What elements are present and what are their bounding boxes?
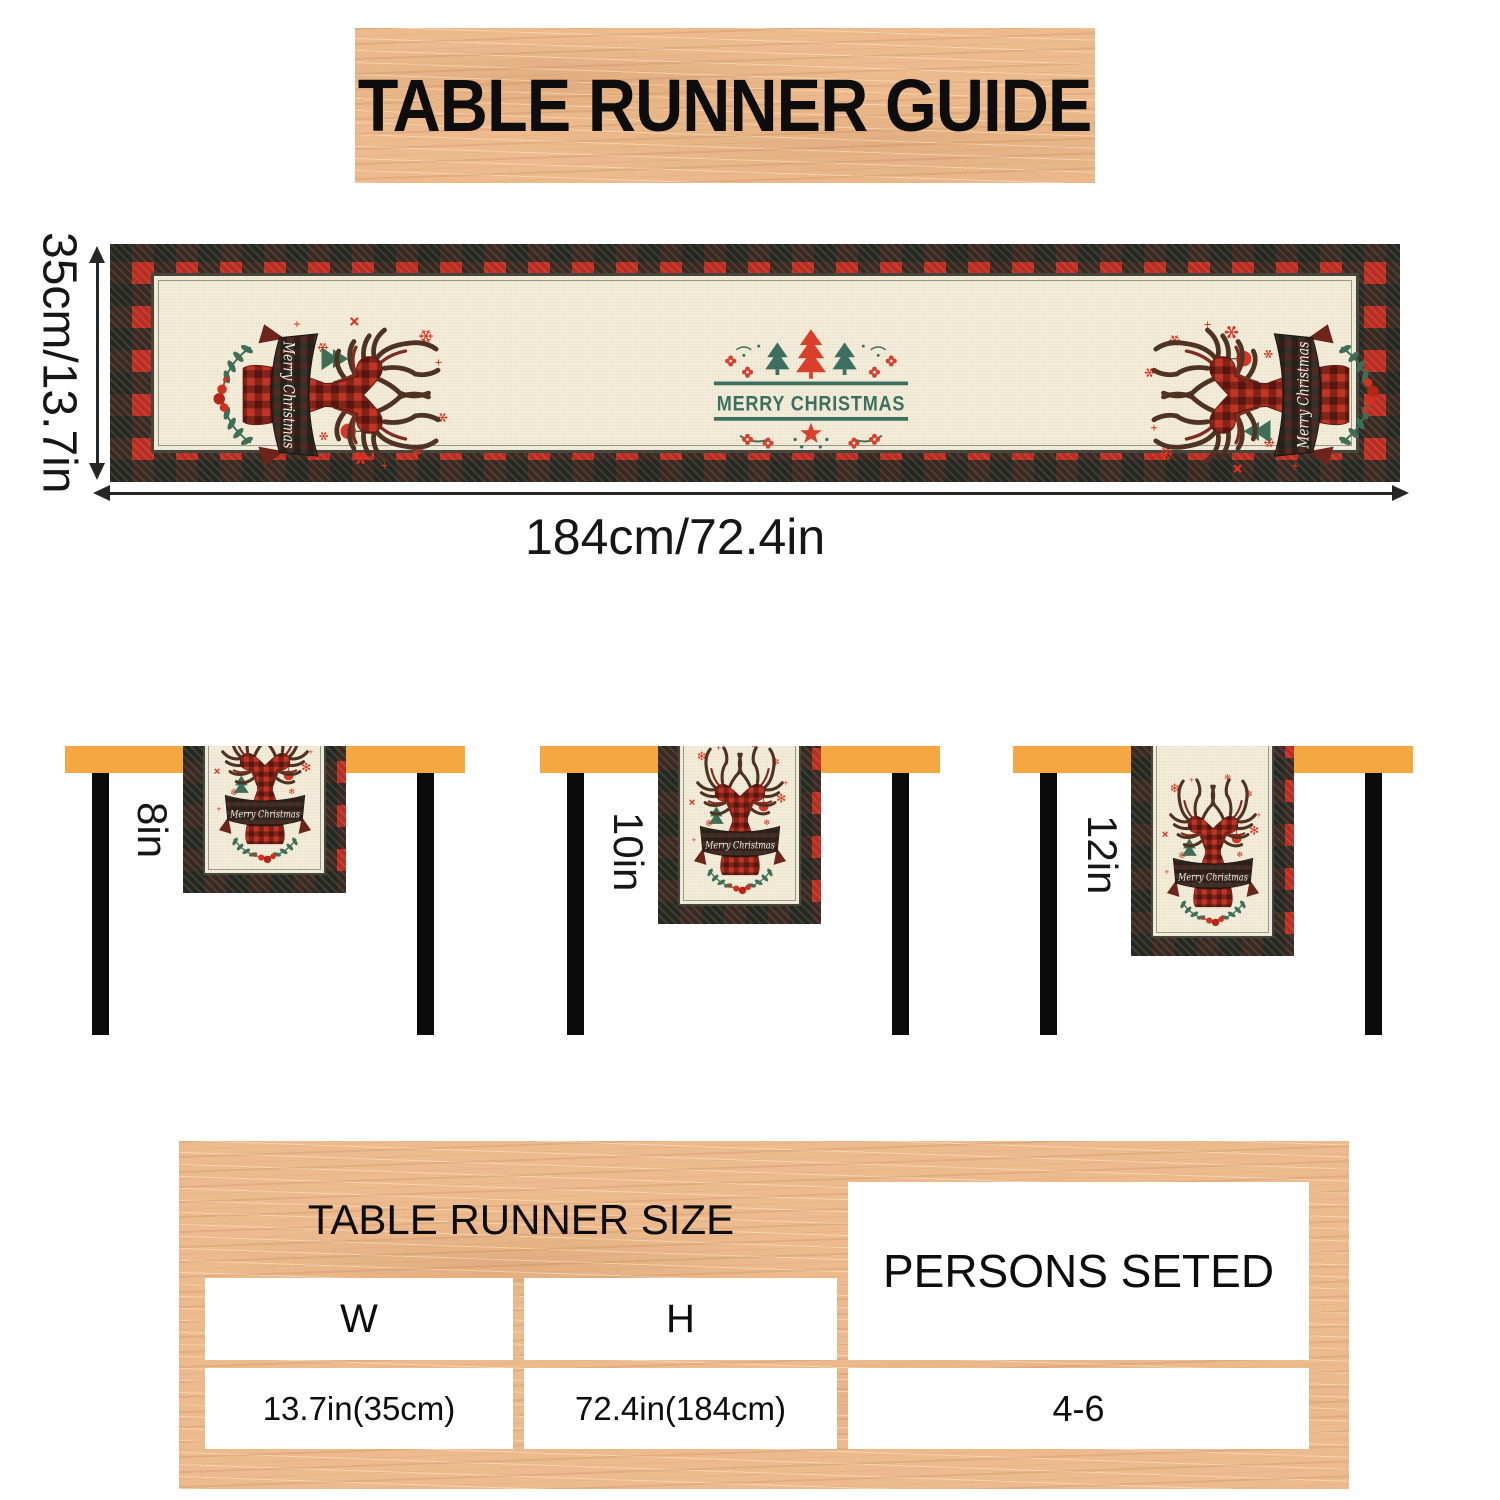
table-runner-guide-infographic: TABLE RUNNER GUIDE 35cm/13.7in <box>0 0 1500 1500</box>
col-header-persons: PERSONS SETED <box>848 1182 1309 1360</box>
hanging-runner-end <box>183 746 346 893</box>
drop-length-label: 10in <box>602 792 654 912</box>
table-leg <box>567 773 584 1035</box>
col-header-h: H <box>524 1278 837 1360</box>
drop-table-12in: 12in <box>1013 746 1413 1035</box>
hanging-runner-end <box>658 746 821 924</box>
size-spec-table: TABLE RUNNER SIZE W H PERSONS SETED 13.7… <box>179 1141 1349 1489</box>
table-leg <box>1040 773 1057 1035</box>
drop-table-10in: 10in <box>540 746 940 1035</box>
drop-length-label: 12in <box>1076 795 1128 915</box>
value-persons: 4-6 <box>848 1368 1309 1449</box>
merry-christmas-motif <box>699 323 923 455</box>
runner-center-panel <box>151 273 1359 453</box>
table-leg <box>1365 773 1382 1035</box>
table-leg <box>417 773 434 1035</box>
table-leg <box>892 773 909 1035</box>
hanging-runner-end <box>1131 746 1294 956</box>
title-banner: TABLE RUNNER GUIDE <box>355 28 1095 183</box>
spec-table-title: TABLE RUNNER SIZE <box>205 1196 837 1244</box>
value-w: 13.7in(35cm) <box>205 1368 513 1449</box>
table-leg <box>92 773 109 1035</box>
value-h: 72.4in(184cm) <box>524 1368 837 1449</box>
width-dimension-label: 184cm/72.4in <box>525 508 825 566</box>
drop-table-8in: 8in <box>65 746 465 1035</box>
height-dimension-label: 35cm/13.7in <box>24 228 94 498</box>
deer-end-graphic-left <box>203 309 461 481</box>
deer-end-graphic-right <box>1131 309 1389 481</box>
page-title: TABLE RUNNER GUIDE <box>358 63 1092 148</box>
table-runner-graphic <box>110 244 1400 482</box>
col-header-w: W <box>205 1278 513 1360</box>
drop-length-label: 8in <box>126 770 178 890</box>
